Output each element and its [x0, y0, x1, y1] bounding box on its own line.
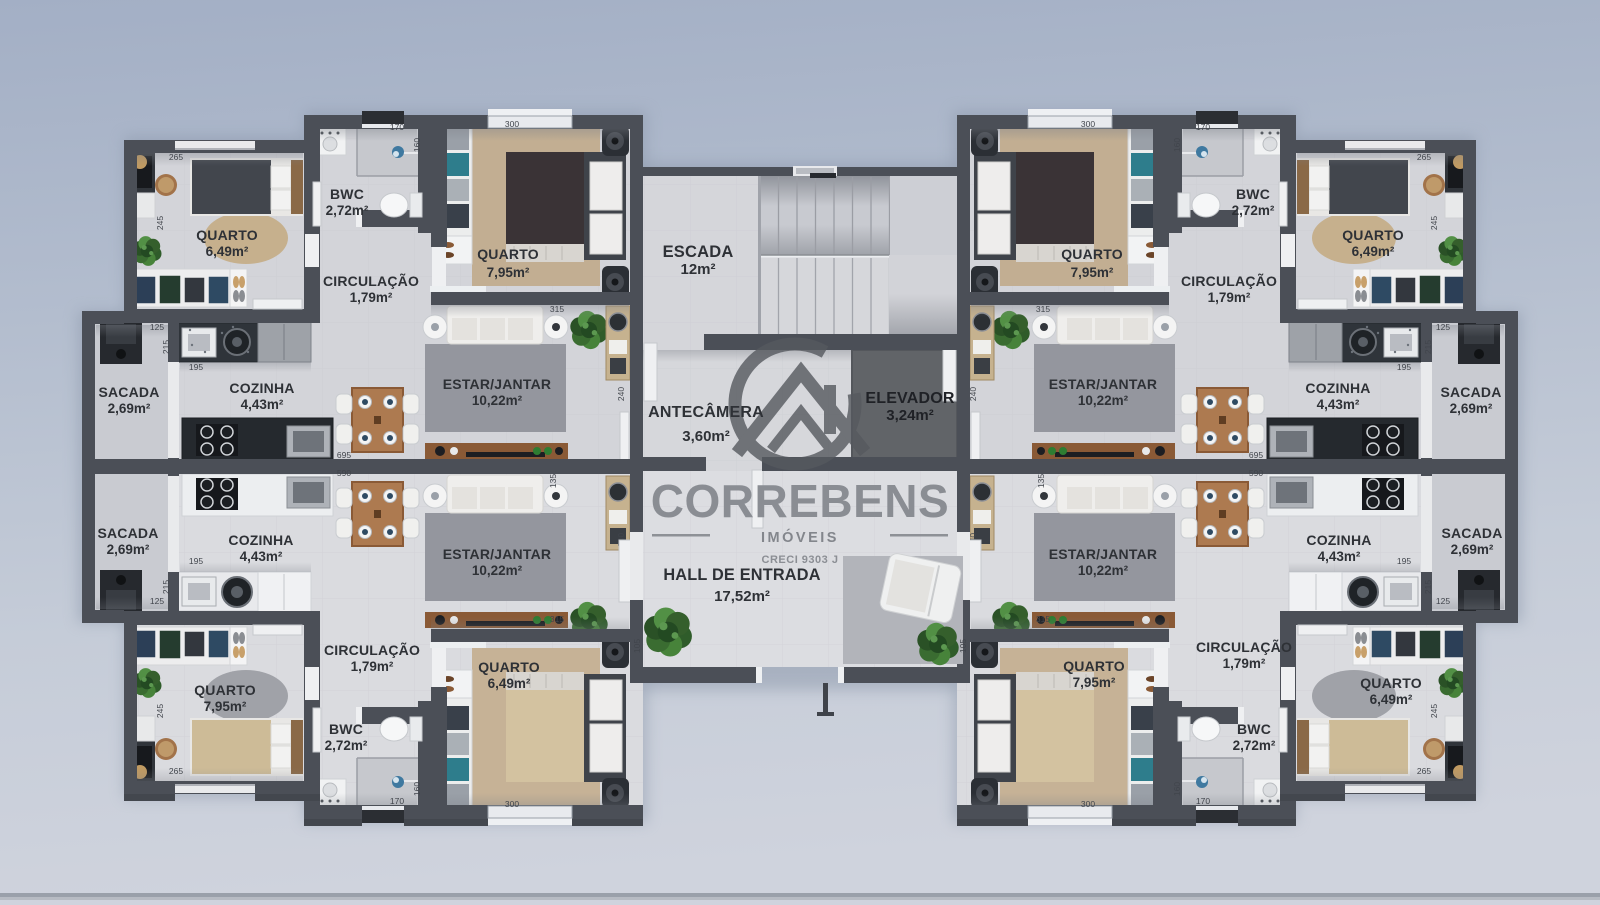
- svg-text:300: 300: [505, 119, 519, 129]
- svg-text:ESCADA: ESCADA: [663, 243, 734, 261]
- svg-text:CIRCULAÇÃO: CIRCULAÇÃO: [323, 272, 419, 289]
- svg-text:215: 215: [161, 580, 171, 594]
- svg-text:590: 590: [337, 468, 351, 478]
- svg-text:HALL DE ENTRADA: HALL DE ENTRADA: [663, 566, 820, 584]
- svg-text:4,43m²: 4,43m²: [1318, 549, 1361, 564]
- svg-text:695: 695: [337, 450, 351, 460]
- svg-text:ESTAR/JANTAR: ESTAR/JANTAR: [443, 546, 551, 562]
- svg-text:COZINHA: COZINHA: [1306, 532, 1371, 548]
- svg-text:QUARTO: QUARTO: [196, 227, 258, 243]
- svg-text:6,49m²: 6,49m²: [1370, 692, 1413, 707]
- svg-text:195: 195: [1397, 362, 1411, 372]
- svg-text:215: 215: [1423, 580, 1433, 594]
- svg-text:1,79m²: 1,79m²: [351, 659, 394, 674]
- svg-text:265: 265: [169, 766, 183, 776]
- svg-text:7,95m²: 7,95m²: [204, 699, 247, 714]
- svg-text:7,95m²: 7,95m²: [487, 265, 530, 280]
- svg-text:590: 590: [1249, 468, 1263, 478]
- svg-text:315: 315: [550, 614, 564, 624]
- svg-text:17,52m²: 17,52m²: [714, 588, 770, 605]
- svg-text:4,43m²: 4,43m²: [1317, 397, 1360, 412]
- svg-text:160: 160: [412, 782, 422, 796]
- svg-text:BWC: BWC: [330, 186, 364, 202]
- svg-text:ELEVADOR: ELEVADOR: [865, 390, 955, 407]
- svg-text:COZINHA: COZINHA: [228, 532, 293, 548]
- svg-text:2,72m²: 2,72m²: [325, 738, 368, 753]
- svg-text:300: 300: [1081, 119, 1095, 129]
- svg-text:6,49m²: 6,49m²: [1352, 244, 1395, 259]
- svg-text:195: 195: [189, 362, 203, 372]
- svg-text:QUARTO: QUARTO: [1342, 227, 1404, 243]
- svg-text:105: 105: [958, 639, 968, 653]
- svg-text:QUARTO: QUARTO: [477, 246, 539, 262]
- svg-text:CIRCULAÇÃO: CIRCULAÇÃO: [1181, 272, 1277, 289]
- svg-text:695: 695: [1249, 450, 1263, 460]
- svg-text:1,79m²: 1,79m²: [350, 290, 393, 305]
- svg-text:265: 265: [169, 152, 183, 162]
- svg-text:160: 160: [412, 138, 422, 152]
- svg-text:2,69m²: 2,69m²: [1450, 401, 1493, 416]
- svg-text:ANTECÂMERA: ANTECÂMERA: [648, 402, 764, 421]
- svg-text:10,22m²: 10,22m²: [1078, 563, 1129, 578]
- svg-text:CORREBENS: CORREBENS: [651, 475, 949, 527]
- svg-text:SACADA: SACADA: [98, 384, 159, 400]
- svg-text:SACADA: SACADA: [1440, 384, 1501, 400]
- svg-text:315: 315: [550, 304, 564, 314]
- svg-text:IMÓVEIS: IMÓVEIS: [761, 528, 839, 546]
- svg-text:105: 105: [632, 639, 642, 653]
- svg-text:3,24m²: 3,24m²: [886, 407, 934, 424]
- svg-text:BWC: BWC: [329, 721, 363, 737]
- svg-text:COZINHA: COZINHA: [1305, 380, 1370, 396]
- svg-text:12m²: 12m²: [680, 261, 715, 278]
- svg-text:170: 170: [390, 122, 404, 132]
- svg-text:10,22m²: 10,22m²: [472, 563, 523, 578]
- svg-text:125: 125: [1436, 322, 1450, 332]
- svg-text:315: 315: [1036, 614, 1050, 624]
- svg-text:COZINHA: COZINHA: [229, 380, 294, 396]
- svg-text:6,49m²: 6,49m²: [488, 676, 531, 691]
- svg-text:240: 240: [616, 387, 626, 401]
- svg-text:4,43m²: 4,43m²: [241, 397, 284, 412]
- svg-text:135: 135: [548, 474, 558, 488]
- svg-text:215: 215: [1423, 340, 1433, 354]
- svg-text:BWC: BWC: [1236, 186, 1270, 202]
- svg-text:245: 245: [155, 216, 165, 230]
- svg-text:160: 160: [1172, 138, 1182, 152]
- svg-text:10,22m²: 10,22m²: [1078, 393, 1129, 408]
- svg-text:ESTAR/JANTAR: ESTAR/JANTAR: [1049, 376, 1157, 392]
- svg-text:2,72m²: 2,72m²: [1233, 738, 1276, 753]
- svg-text:2,69m²: 2,69m²: [107, 542, 150, 557]
- svg-text:245: 245: [155, 704, 165, 718]
- svg-text:2,69m²: 2,69m²: [108, 401, 151, 416]
- svg-text:135: 135: [1036, 474, 1046, 488]
- svg-text:7,95m²: 7,95m²: [1073, 675, 1116, 690]
- svg-text:10,22m²: 10,22m²: [472, 393, 523, 408]
- svg-text:CIRCULAÇÃO: CIRCULAÇÃO: [324, 641, 420, 658]
- svg-text:BWC: BWC: [1237, 721, 1271, 737]
- svg-text:125: 125: [150, 322, 164, 332]
- svg-text:4,43m²: 4,43m²: [240, 549, 283, 564]
- svg-text:265: 265: [1417, 152, 1431, 162]
- svg-text:1,79m²: 1,79m²: [1208, 290, 1251, 305]
- svg-text:7,95m²: 7,95m²: [1071, 265, 1114, 280]
- svg-text:QUARTO: QUARTO: [1360, 675, 1422, 691]
- svg-text:QUARTO: QUARTO: [194, 682, 256, 698]
- svg-text:315: 315: [1036, 304, 1050, 314]
- svg-text:2,72m²: 2,72m²: [1232, 203, 1275, 218]
- svg-text:QUARTO: QUARTO: [478, 659, 540, 675]
- svg-text:195: 195: [1397, 556, 1411, 566]
- svg-text:195: 195: [189, 556, 203, 566]
- svg-text:245: 245: [1429, 216, 1439, 230]
- svg-text:QUARTO: QUARTO: [1061, 246, 1123, 262]
- svg-text:160: 160: [1172, 782, 1182, 796]
- svg-text:1,79m²: 1,79m²: [1223, 656, 1266, 671]
- svg-text:215: 215: [161, 340, 171, 354]
- svg-text:ESTAR/JANTAR: ESTAR/JANTAR: [1049, 546, 1157, 562]
- svg-text:SACADA: SACADA: [1441, 525, 1502, 541]
- svg-text:265: 265: [1417, 766, 1431, 776]
- svg-text:245: 245: [1429, 704, 1439, 718]
- svg-text:CIRCULAÇÃO: CIRCULAÇÃO: [1196, 638, 1292, 655]
- svg-text:170: 170: [1196, 122, 1210, 132]
- svg-text:QUARTO: QUARTO: [1063, 658, 1125, 674]
- svg-text:125: 125: [1436, 596, 1450, 606]
- svg-text:CRECI 9303 J: CRECI 9303 J: [762, 554, 839, 566]
- svg-text:125: 125: [150, 596, 164, 606]
- svg-text:SACADA: SACADA: [97, 525, 158, 541]
- svg-text:170: 170: [390, 796, 404, 806]
- svg-text:6,49m²: 6,49m²: [206, 244, 249, 259]
- svg-text:300: 300: [1081, 799, 1095, 809]
- svg-text:2,69m²: 2,69m²: [1451, 542, 1494, 557]
- svg-text:ESTAR/JANTAR: ESTAR/JANTAR: [443, 376, 551, 392]
- svg-text:300: 300: [505, 799, 519, 809]
- svg-text:2,72m²: 2,72m²: [326, 203, 369, 218]
- svg-text:170: 170: [1196, 796, 1210, 806]
- svg-text:3,60m²: 3,60m²: [682, 428, 730, 445]
